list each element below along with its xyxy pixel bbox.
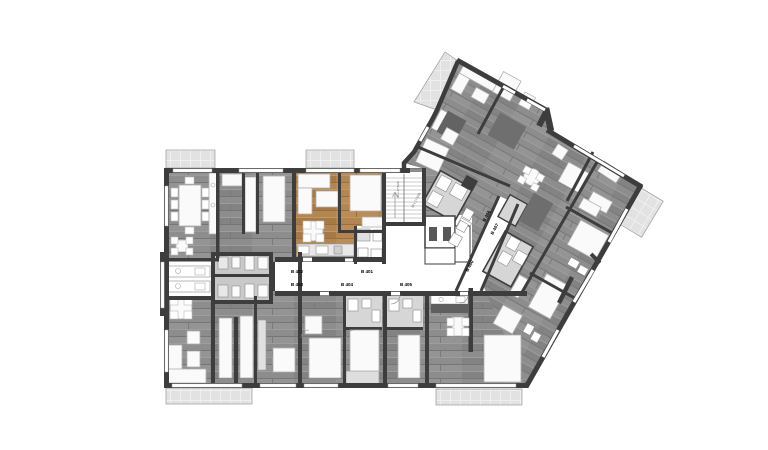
svg-text:36 x 17,5/29: 36 x 17,5/29: [396, 181, 400, 198]
svg-text:B 404: B 404: [341, 282, 354, 287]
svg-text:B 402: B 402: [291, 269, 304, 274]
svg-text:B 405: B 405: [400, 282, 413, 287]
svg-text:B 401: B 401: [361, 269, 374, 274]
svg-text:B 403: B 403: [291, 282, 304, 287]
